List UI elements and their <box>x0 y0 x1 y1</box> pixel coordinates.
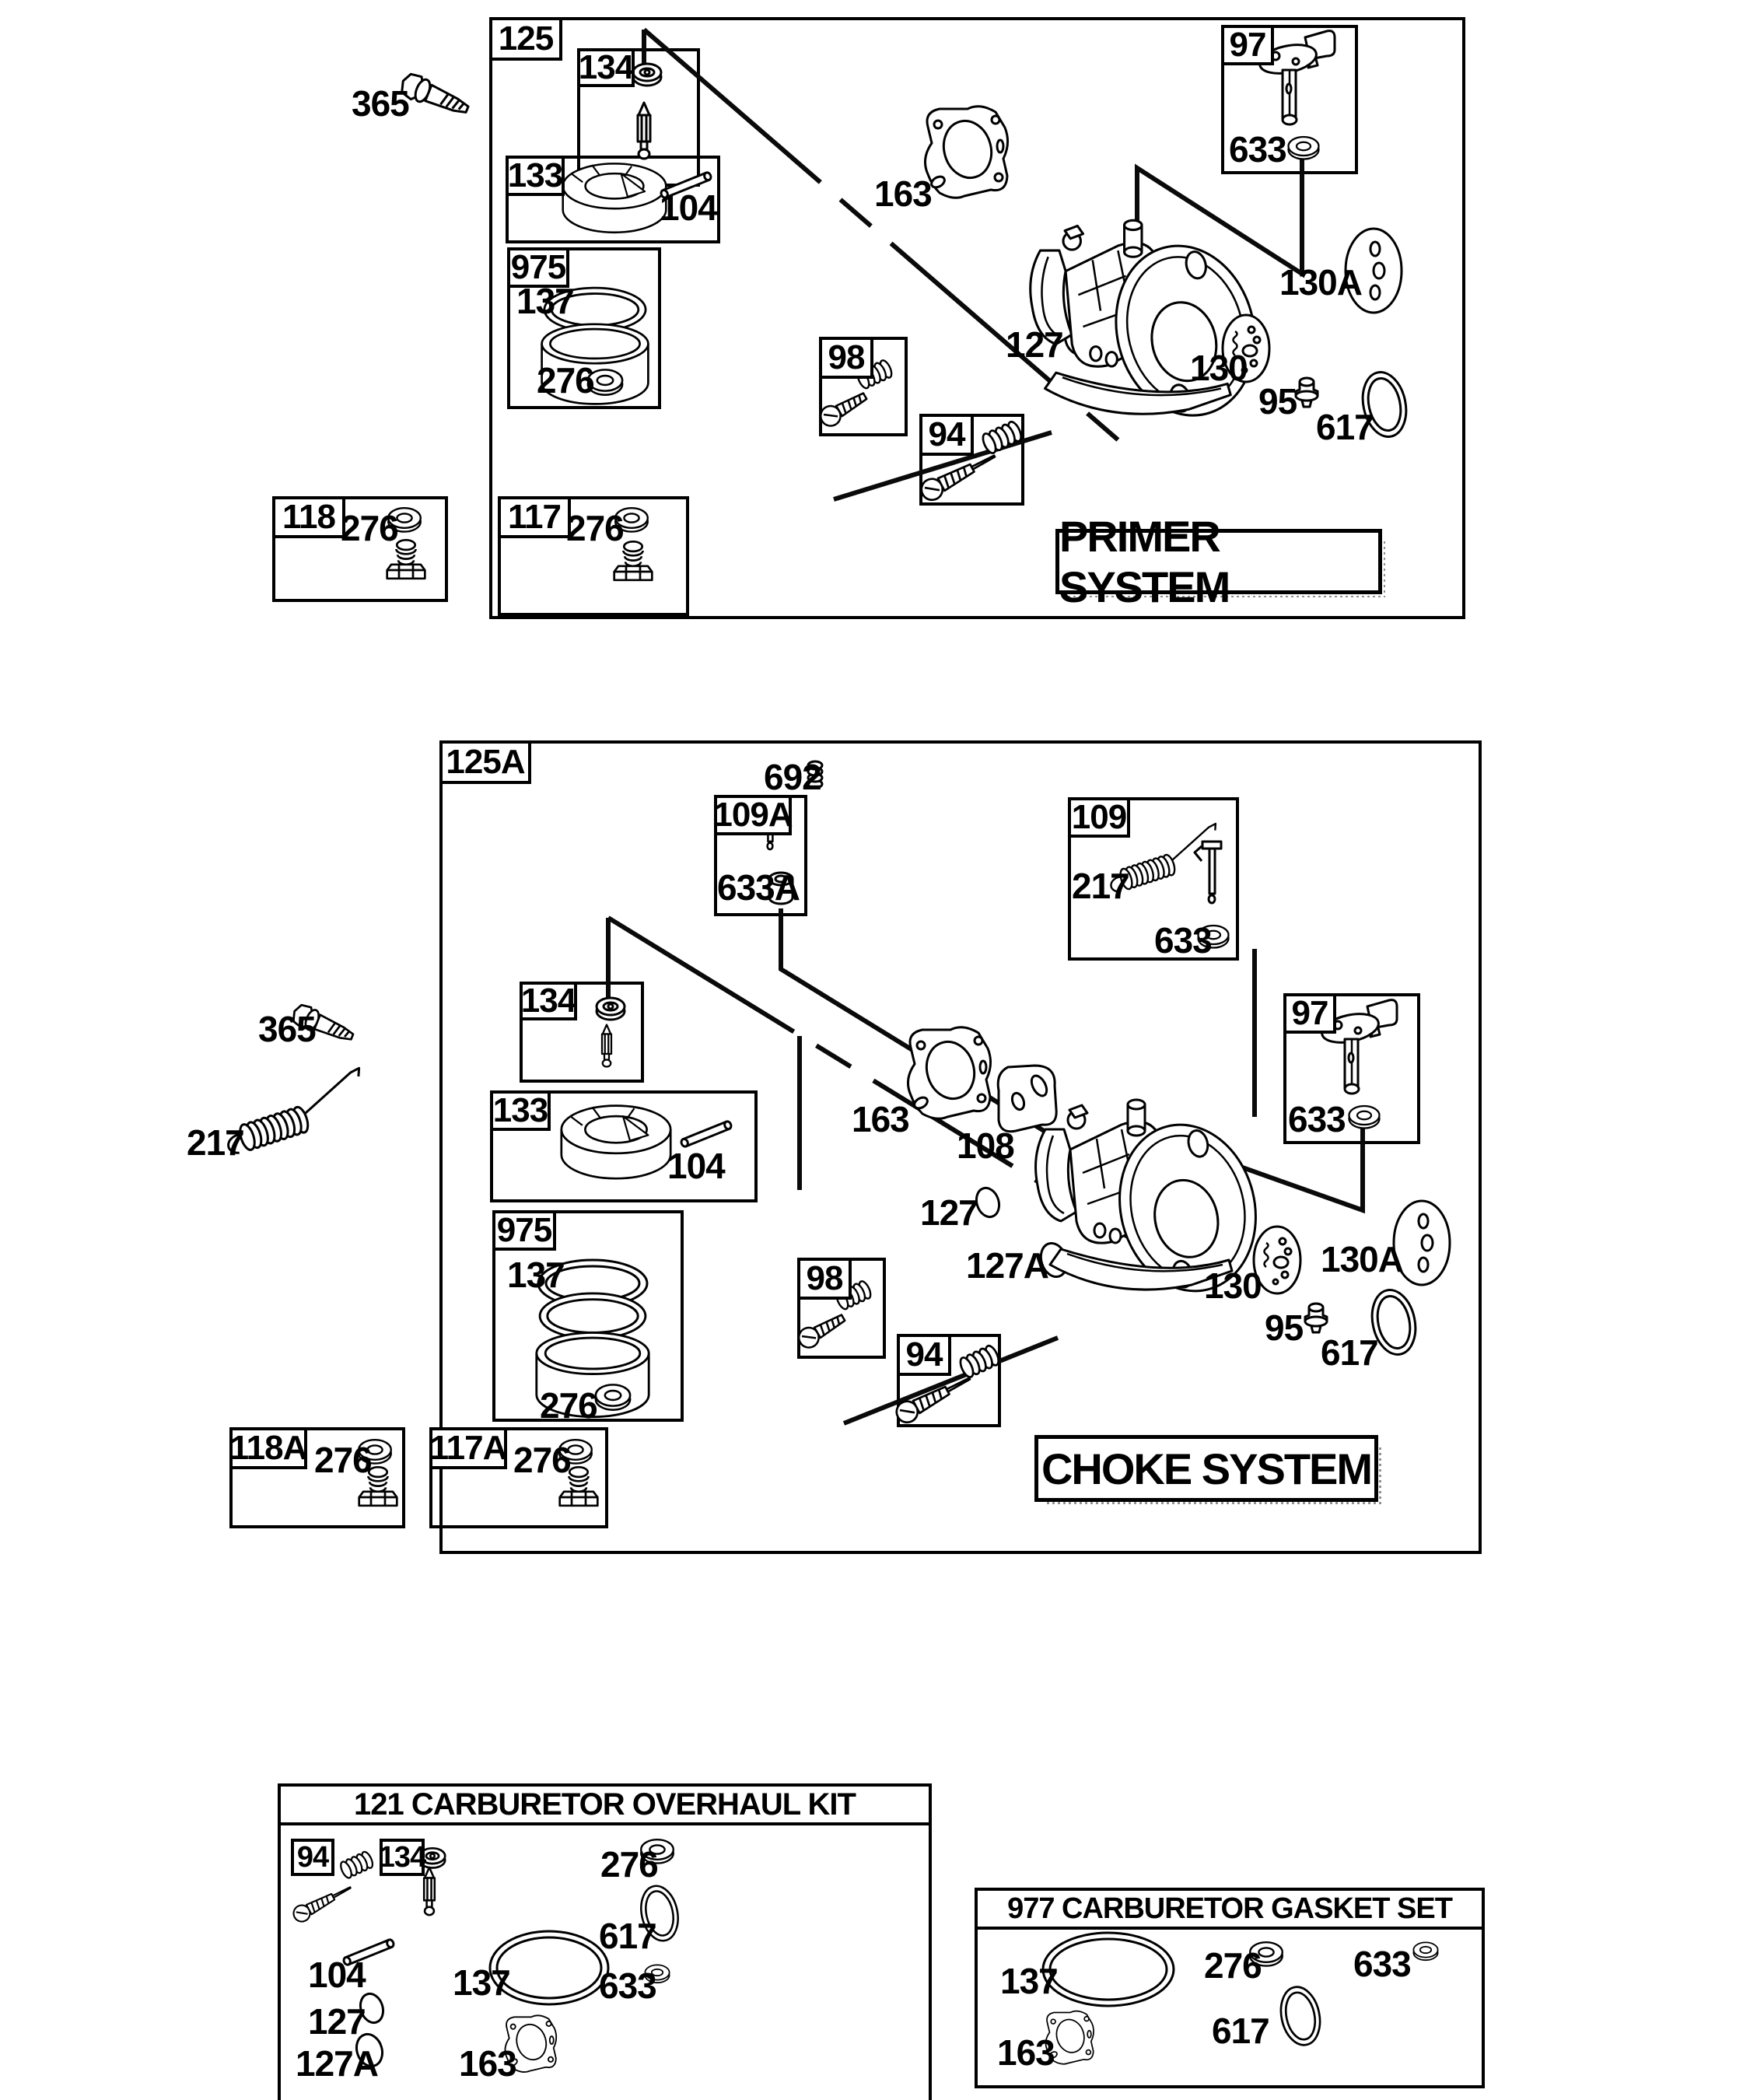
choke-box-134-label: 134 <box>520 982 577 1020</box>
callout-633: 633 <box>1229 128 1286 170</box>
callout-108: 108 <box>957 1125 1014 1167</box>
primer-box-97-label: 97 <box>1221 25 1274 65</box>
kit-box-134-label: 134 <box>380 1839 425 1876</box>
kit-callout-137: 137 <box>453 1962 510 2004</box>
kit-callout-163: 163 <box>459 2042 516 2084</box>
callout-217-choke: 217 <box>187 1122 244 1164</box>
choke-box-109A-label: 109A <box>714 795 792 835</box>
callout-127: 127 <box>1006 324 1063 366</box>
callout-633-choke97: 633 <box>1288 1098 1346 1140</box>
callout-127A: 127A <box>966 1244 1048 1286</box>
callout-163-choke: 163 <box>852 1098 909 1140</box>
primer-box-134-label: 134 <box>577 48 635 87</box>
set-callout-633: 633 <box>1353 1943 1411 1985</box>
label-text: 118 <box>282 498 335 537</box>
primer-box-94-label: 94 <box>919 414 974 456</box>
choke-section-label: 125A <box>439 740 531 784</box>
choke-box-975-label: 975 <box>492 1210 556 1251</box>
label-text: 98 <box>828 338 865 377</box>
label-text: 975 <box>497 1211 551 1250</box>
callout-633-box109: 633 <box>1154 919 1212 961</box>
callout-217-box109: 217 <box>1072 865 1129 907</box>
callout-130-choke: 130 <box>1204 1265 1262 1307</box>
set-callout-163: 163 <box>997 2032 1055 2074</box>
callout-617-choke: 617 <box>1321 1332 1378 1374</box>
label-text: 134 <box>579 48 633 87</box>
label-text: 97 <box>1292 994 1328 1033</box>
callout-127-choke: 127 <box>920 1192 978 1234</box>
callout-104-choke: 104 <box>667 1145 725 1187</box>
primer-box-975-label: 975 <box>507 247 569 288</box>
kit-callout-104: 104 <box>308 1954 366 1996</box>
label-text: 133 <box>508 156 562 195</box>
primer-section-label: 125 <box>489 17 562 61</box>
label-text: 975 <box>511 248 565 287</box>
label-text: 109A <box>713 796 792 835</box>
callout-104: 104 <box>660 187 717 229</box>
kit-callout-617: 617 <box>599 1915 656 1957</box>
label-text: 109 <box>1072 798 1126 837</box>
primer-box-118-label: 118 <box>272 496 345 538</box>
label-text: 134 <box>379 1841 425 1874</box>
callout-276-117A: 276 <box>513 1439 571 1481</box>
choke-section-label-text: 125A <box>446 743 524 782</box>
callout-130A-choke: 130A <box>1321 1238 1403 1280</box>
set-callout-617: 617 <box>1212 2010 1269 2052</box>
set-callout-276: 276 <box>1204 1944 1262 1986</box>
callout-137-choke: 137 <box>507 1254 565 1296</box>
set-callout-137: 137 <box>1000 1960 1058 2002</box>
kit-callout-276: 276 <box>600 1843 658 1885</box>
choke-box-97-label: 97 <box>1283 993 1336 1034</box>
parts-diagram-page: 125 134 133 975 118 117 98 94 97 PRIMER … <box>0 0 1750 2100</box>
kit-callout-633: 633 <box>599 1965 656 2007</box>
callout-276-bowl: 276 <box>537 359 594 401</box>
label-text: 94 <box>297 1841 328 1874</box>
label-text: 98 <box>807 1259 843 1298</box>
callout-365-choke: 365 <box>258 1008 316 1050</box>
callout-276-118A: 276 <box>314 1439 372 1481</box>
kit-box-94-label: 94 <box>291 1839 334 1876</box>
primer-section-label-text: 125 <box>499 19 553 58</box>
primer-box-133-label: 133 <box>506 156 565 196</box>
label-text: 94 <box>906 1335 943 1374</box>
overhaul-kit-title-text: 121 CARBURETOR OVERHAUL KIT <box>354 1787 856 1822</box>
primer-box-117-label: 117 <box>498 496 571 538</box>
overhaul-kit-title: 121 CARBURETOR OVERHAUL KIT <box>281 1787 929 1825</box>
choke-box-117A-label: 117A <box>429 1427 507 1469</box>
callout-365: 365 <box>352 82 409 124</box>
kit-callout-127A: 127A <box>296 2042 378 2084</box>
callout-130A: 130A <box>1279 261 1362 303</box>
label-text: 134 <box>521 982 576 1020</box>
callout-276-118: 276 <box>341 507 398 549</box>
callout-617: 617 <box>1316 406 1374 448</box>
callout-163: 163 <box>874 173 932 215</box>
label-text: 117 <box>508 498 561 537</box>
primer-banner-text: PRIMER SYSTEM <box>1059 511 1378 612</box>
choke-box-94-label: 94 <box>897 1334 951 1376</box>
primer-box-98-label: 98 <box>819 337 873 379</box>
primer-banner: PRIMER SYSTEM <box>1055 529 1382 594</box>
label-text: 94 <box>929 415 965 454</box>
callout-692: 692 <box>764 756 821 798</box>
choke-box-109-label: 109 <box>1068 797 1130 838</box>
callout-130: 130 <box>1190 347 1248 389</box>
label-text: 117A <box>430 1429 507 1468</box>
callout-633A: 633A <box>717 866 800 908</box>
callout-95: 95 <box>1258 380 1297 422</box>
label-text: 133 <box>493 1091 548 1130</box>
choke-banner: CHOKE SYSTEM <box>1034 1435 1378 1502</box>
label-text: 97 <box>1230 26 1266 65</box>
gasket-set-title: 977 CARBURETOR GASKET SET <box>978 1891 1482 1930</box>
callout-95-choke: 95 <box>1265 1307 1303 1349</box>
gasket-set-title-text: 977 CARBURETOR GASKET SET <box>1007 1892 1452 1926</box>
choke-box-98-label: 98 <box>797 1258 852 1300</box>
choke-banner-text: CHOKE SYSTEM <box>1041 1444 1371 1494</box>
label-text: 118A <box>230 1429 307 1468</box>
callout-276-bowl-choke: 276 <box>540 1384 597 1426</box>
choke-box-133-label: 133 <box>490 1090 551 1131</box>
kit-callout-127: 127 <box>308 2000 366 2042</box>
callout-276-117: 276 <box>566 507 624 549</box>
choke-box-118A-label: 118A <box>229 1427 307 1469</box>
